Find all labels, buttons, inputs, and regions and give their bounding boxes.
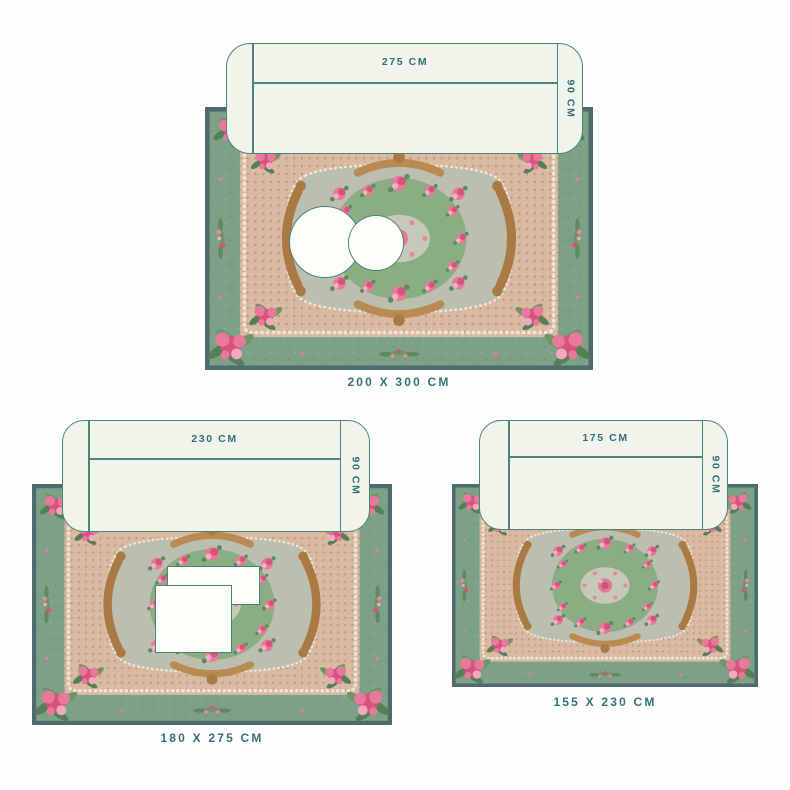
sofa-depth-dimension: 90 CM (564, 79, 576, 118)
rug-size-label-medium: 180 X 275 CM (32, 731, 392, 745)
sofa-depth-dimension: 90 CM (349, 457, 361, 496)
rug-size-label-small: 155 X 230 CM (452, 695, 758, 709)
sofa-outline-large: 275 CM 90 CM (226, 43, 583, 154)
sofa-depth-dimension: 90 CM (709, 456, 721, 495)
rug-size-guide: 275 CM 90 CM 200 X 300 CM 230 CM 90 CM 1… (0, 0, 790, 790)
sofa-depth-band: 90 CM (341, 421, 369, 531)
sofa-outline-medium: 230 CM 90 CM (62, 420, 370, 532)
round-table-small (348, 215, 404, 271)
sofa-width-dimension: 230 CM (88, 421, 341, 456)
sofa-backrest-line (510, 456, 702, 458)
sofa-backrest-line (90, 458, 340, 460)
sofa-depth-band: 90 CM (703, 421, 727, 529)
sofa-backrest-line (254, 82, 557, 84)
sofa-width-dimension: 275 CM (252, 44, 558, 80)
sofa-outline-small: 175 CM 90 CM (479, 420, 728, 530)
rug-size-label-large: 200 X 300 CM (205, 375, 593, 389)
sofa-depth-band: 90 CM (558, 44, 582, 153)
sofa-width-dimension: 175 CM (508, 421, 703, 454)
rect-table-square (155, 585, 232, 653)
